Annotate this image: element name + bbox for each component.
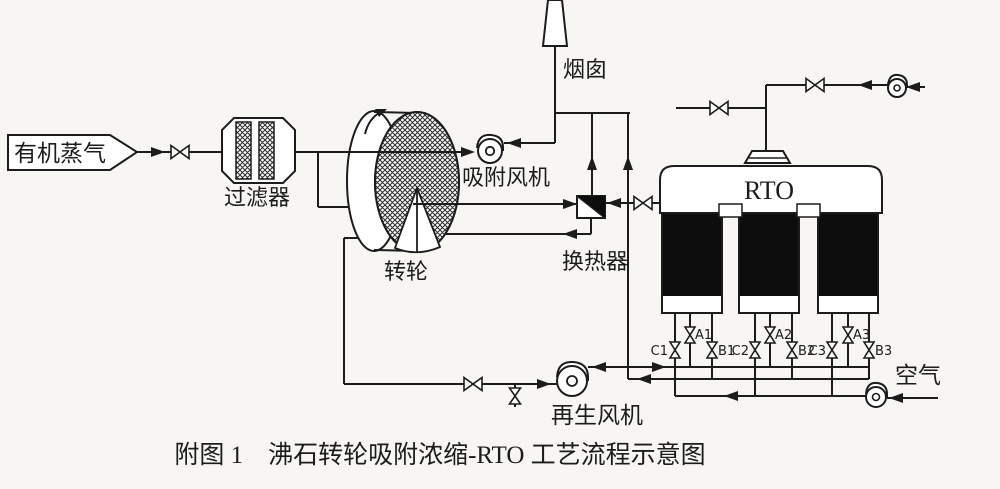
valve-c1 bbox=[670, 342, 680, 358]
valve-a3 bbox=[843, 327, 853, 343]
valve-label-b3: B3 bbox=[875, 344, 892, 359]
arrow-manifold2-left-icon bbox=[637, 374, 651, 384]
valve-label-c2: C2 bbox=[732, 344, 749, 359]
arrow-into-regen-fan-icon bbox=[537, 379, 551, 389]
air-fan-symbol bbox=[866, 383, 887, 407]
arrow-to-adsorption-fan-icon bbox=[461, 147, 475, 157]
combustion-air-fan-symbol bbox=[888, 75, 907, 97]
valve-a1 bbox=[685, 327, 695, 343]
valve-inlet bbox=[171, 146, 189, 159]
rto-gap-notch bbox=[719, 204, 742, 217]
valve-fuel-upper bbox=[806, 79, 824, 92]
stack-symbol bbox=[543, 0, 567, 46]
valve-label-a2: A2 bbox=[775, 328, 792, 343]
valve-label-c1: C1 bbox=[651, 344, 668, 359]
arrow-into-hx-right-icon bbox=[607, 198, 621, 208]
valve-label-a3: A3 bbox=[853, 328, 870, 343]
organic-vapor-label: 有机蒸气 bbox=[14, 141, 106, 167]
arrow-into-top-fan-icon bbox=[906, 82, 920, 92]
rto-tower-2 bbox=[739, 213, 799, 313]
regen-fan-label: 再生风机 bbox=[551, 403, 643, 429]
valve-c2 bbox=[750, 342, 760, 358]
rto-tower-3 bbox=[818, 213, 878, 313]
rto-gap-notch bbox=[797, 204, 820, 217]
valve-hx-rto bbox=[634, 197, 652, 210]
arrow-manifold1-right-icon bbox=[652, 362, 666, 372]
valve-b3 bbox=[864, 342, 874, 358]
arrow-fuel-line-icon bbox=[858, 80, 872, 90]
arrow-riser1-up-icon bbox=[587, 156, 597, 170]
valve-b1 bbox=[707, 342, 717, 358]
rto-burner-port bbox=[745, 151, 790, 163]
rto-label: RTO bbox=[744, 176, 794, 205]
arrow-into-hx-left-icon bbox=[563, 199, 577, 209]
process-flow-diagram: 有机蒸气 过滤器 转轮 烟囱 吸附风机 换热 bbox=[0, 0, 1000, 489]
diagram-canvas: 有机蒸气 过滤器 转轮 烟囱 吸附风机 换热 bbox=[0, 0, 1000, 489]
filter-label: 过滤器 bbox=[224, 186, 290, 211]
arrow-riser2-up-icon bbox=[623, 156, 633, 170]
valve-c3 bbox=[827, 342, 837, 358]
rotor-label: 转轮 bbox=[384, 260, 428, 285]
valve-label-c3: C3 bbox=[809, 344, 826, 359]
arrow-manifold1-left-icon bbox=[592, 362, 606, 372]
arrow-into-air-fan-icon bbox=[889, 393, 903, 403]
valve-b2 bbox=[787, 342, 797, 358]
air-label: 空气 bbox=[895, 363, 941, 389]
caption: 附图 1 沸石转轮吸附浓缩-RTO 工艺流程示意图 bbox=[174, 441, 705, 469]
adsorption-fan-symbol bbox=[477, 135, 503, 163]
valve-a2 bbox=[765, 327, 775, 343]
rto-tower-1 bbox=[662, 213, 722, 313]
adsorption-fan-label: 吸附风机 bbox=[462, 166, 550, 191]
valve-label-a1: A1 bbox=[695, 328, 712, 343]
arrow-fan-stack-icon bbox=[507, 138, 521, 148]
rotor-symbol bbox=[347, 109, 459, 252]
stack-label: 烟囱 bbox=[563, 58, 607, 83]
heat-exchanger-symbol bbox=[577, 196, 605, 218]
arrow-hx-return-icon bbox=[563, 229, 577, 239]
arrow-inlet-icon bbox=[151, 147, 165, 157]
heat-exchanger-label: 换热器 bbox=[562, 250, 628, 275]
filter-symbol bbox=[222, 118, 295, 183]
regen-fan-symbol bbox=[557, 362, 588, 396]
valve-regen-loop bbox=[464, 378, 482, 391]
organic-vapor-banner: 有机蒸气 bbox=[8, 135, 137, 170]
valve-air-bleed bbox=[510, 388, 521, 404]
valve-fuel-lower bbox=[710, 102, 728, 115]
arrow-air-manifold-icon bbox=[724, 391, 738, 401]
